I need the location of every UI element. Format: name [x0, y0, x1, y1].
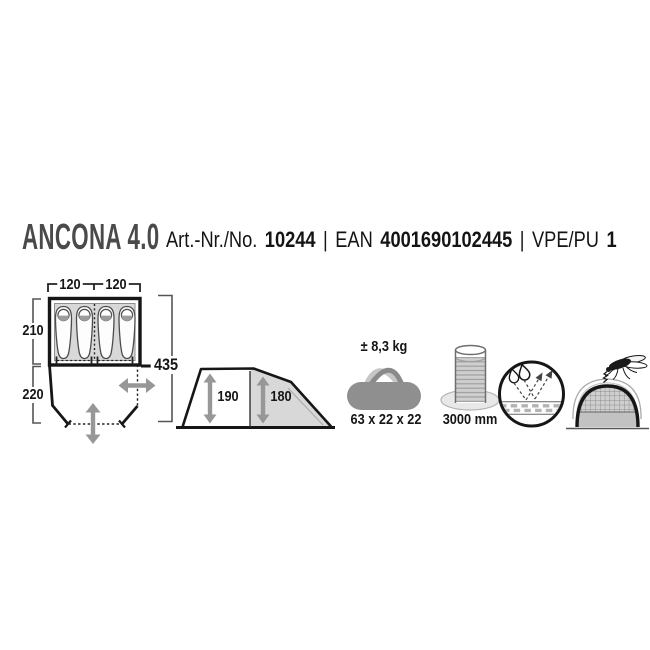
sleeping-pad-icon	[119, 307, 135, 359]
vpe-value: 1	[606, 227, 616, 253]
dim-front-height: 190	[214, 389, 241, 405]
dim-rear-height: 180	[267, 389, 294, 405]
article-number-value: 10244	[265, 227, 316, 253]
sleeping-pad-icon	[77, 307, 93, 359]
dim-porch-depth: 220	[20, 387, 46, 403]
breathable-fabric-icon	[500, 362, 564, 426]
dim-cabin-depth: 210	[20, 323, 46, 339]
water-column-value: 3000 mm	[434, 412, 505, 428]
water-column-icon	[441, 346, 499, 411]
ean-label: EAN	[335, 227, 373, 253]
bag-body	[347, 382, 421, 410]
mosquito-icon	[604, 354, 648, 383]
dim-cabin-width-right: 120	[103, 277, 129, 293]
porch-left-wall	[50, 365, 69, 424]
pack-size: 63 x 22 x 22	[349, 412, 424, 428]
water-stripes	[456, 357, 486, 402]
cylinder-rim	[456, 346, 486, 355]
sideview-diagram	[176, 369, 335, 428]
separator: |	[323, 227, 328, 253]
product-info-line: Art.-Nr./No. 10244 | EAN 4001690102445 |…	[166, 227, 617, 253]
ean-value: 4001690102445	[380, 227, 512, 253]
duffel-bag-icon	[347, 370, 421, 410]
dim-cabin-width-left: 120	[57, 277, 83, 293]
dim-total-length: 435	[151, 356, 182, 374]
article-number-label: Art.-Nr./No.	[166, 227, 257, 253]
product-spec-sheet: ANCONA 4.0 Art.-Nr./No. 10244 | EAN 4001…	[0, 0, 650, 650]
mosquito-proboscis	[604, 372, 608, 383]
porch-right-wall	[122, 406, 138, 424]
sleeping-pad-icon	[98, 307, 114, 359]
product-name: ANCONA 4.0	[22, 216, 159, 258]
mosquito-mesh-icon	[566, 354, 649, 429]
pack-weight: ± 8,3 kg	[347, 339, 422, 355]
vpe-label: VPE/PU	[532, 227, 599, 253]
spec-diagram	[0, 0, 650, 650]
sleeping-pad-icon	[56, 307, 72, 359]
separator: |	[520, 227, 525, 253]
